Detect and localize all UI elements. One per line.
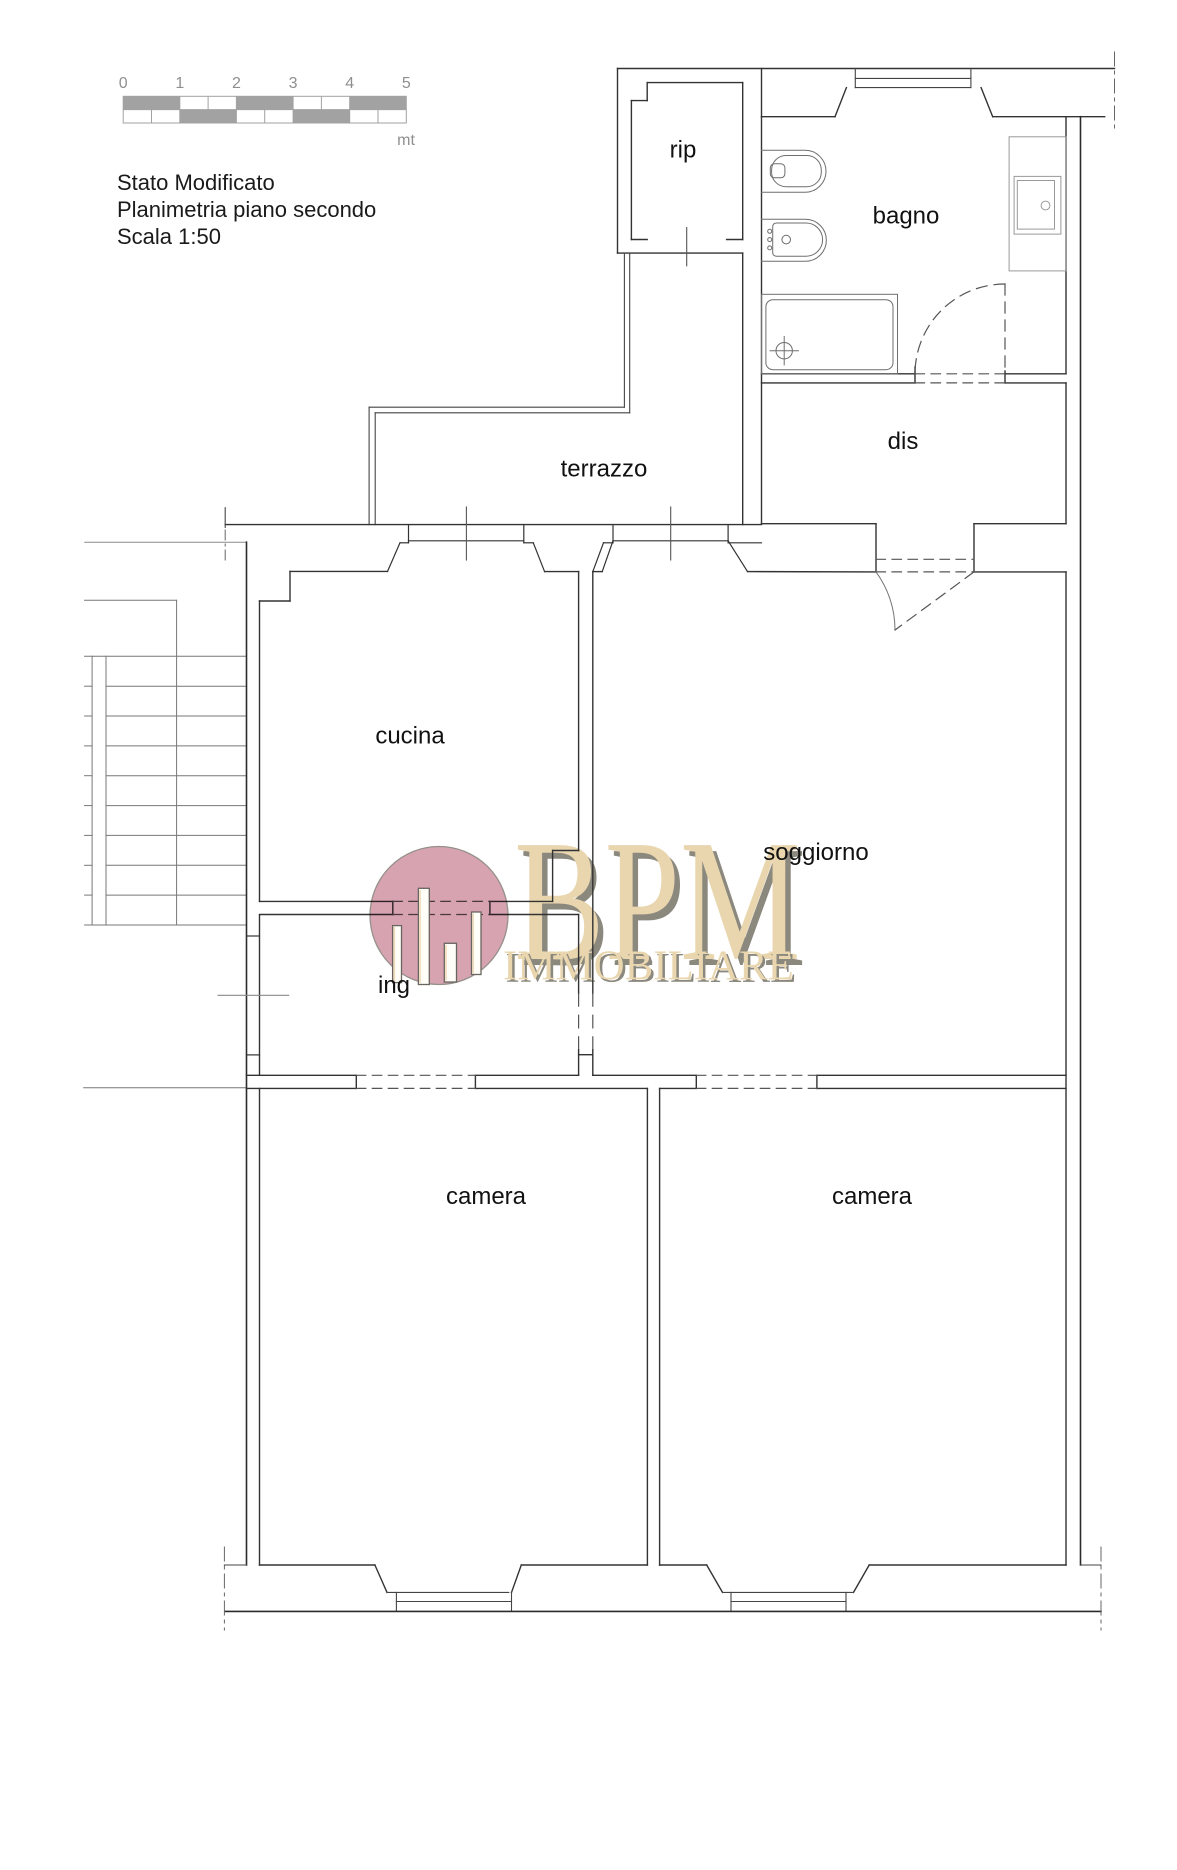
svg-text:bagno: bagno	[873, 203, 940, 230]
svg-text:ing: ing	[378, 972, 410, 999]
svg-text:camera: camera	[446, 1183, 527, 1210]
svg-text:1: 1	[175, 75, 184, 92]
svg-text:Stato Modificato: Stato Modificato	[117, 170, 275, 195]
svg-text:mt: mt	[397, 132, 415, 149]
svg-text:5: 5	[402, 75, 411, 92]
svg-text:camera: camera	[832, 1183, 913, 1210]
svg-text:Planimetria piano secondo: Planimetria piano secondo	[117, 197, 376, 222]
svg-text:Scala 1:50: Scala 1:50	[117, 224, 221, 249]
svg-text:terrazzo: terrazzo	[561, 456, 648, 483]
svg-text:0: 0	[119, 75, 128, 92]
svg-text:IMMOBILIARE: IMMOBILIARE	[503, 943, 794, 989]
svg-text:3: 3	[289, 75, 298, 92]
svg-text:4: 4	[345, 75, 354, 92]
svg-text:dis: dis	[888, 428, 919, 455]
svg-text:rip: rip	[670, 137, 697, 164]
svg-text:2: 2	[232, 75, 241, 92]
svg-text:soggiorno: soggiorno	[763, 839, 868, 866]
svg-text:cucina: cucina	[375, 723, 445, 750]
